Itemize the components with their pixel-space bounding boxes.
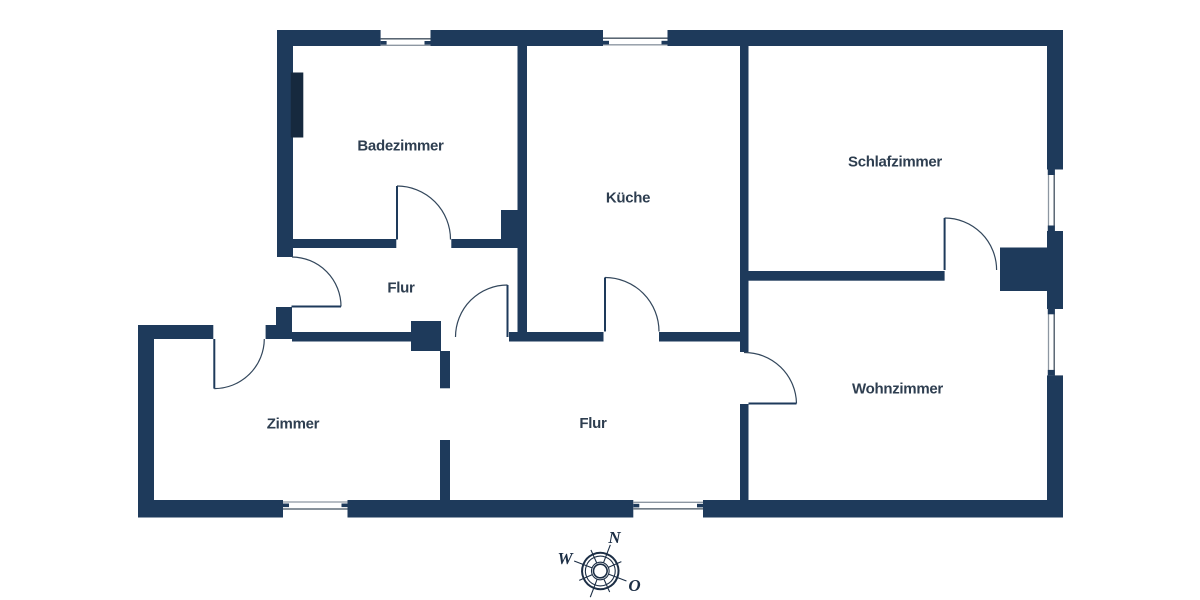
- svg-text:O: O: [628, 576, 640, 595]
- svg-text:Zimmer: Zimmer: [267, 416, 320, 433]
- svg-text:Badezimmer: Badezimmer: [357, 138, 444, 155]
- svg-text:Flur: Flur: [387, 280, 415, 297]
- svg-text:N: N: [607, 528, 621, 547]
- svg-text:Flur: Flur: [579, 415, 607, 432]
- svg-text:Schlafzimmer: Schlafzimmer: [848, 154, 942, 171]
- svg-text:Wohnzimmer: Wohnzimmer: [852, 381, 943, 398]
- svg-text:W: W: [557, 549, 574, 568]
- svg-text:Küche: Küche: [606, 190, 650, 207]
